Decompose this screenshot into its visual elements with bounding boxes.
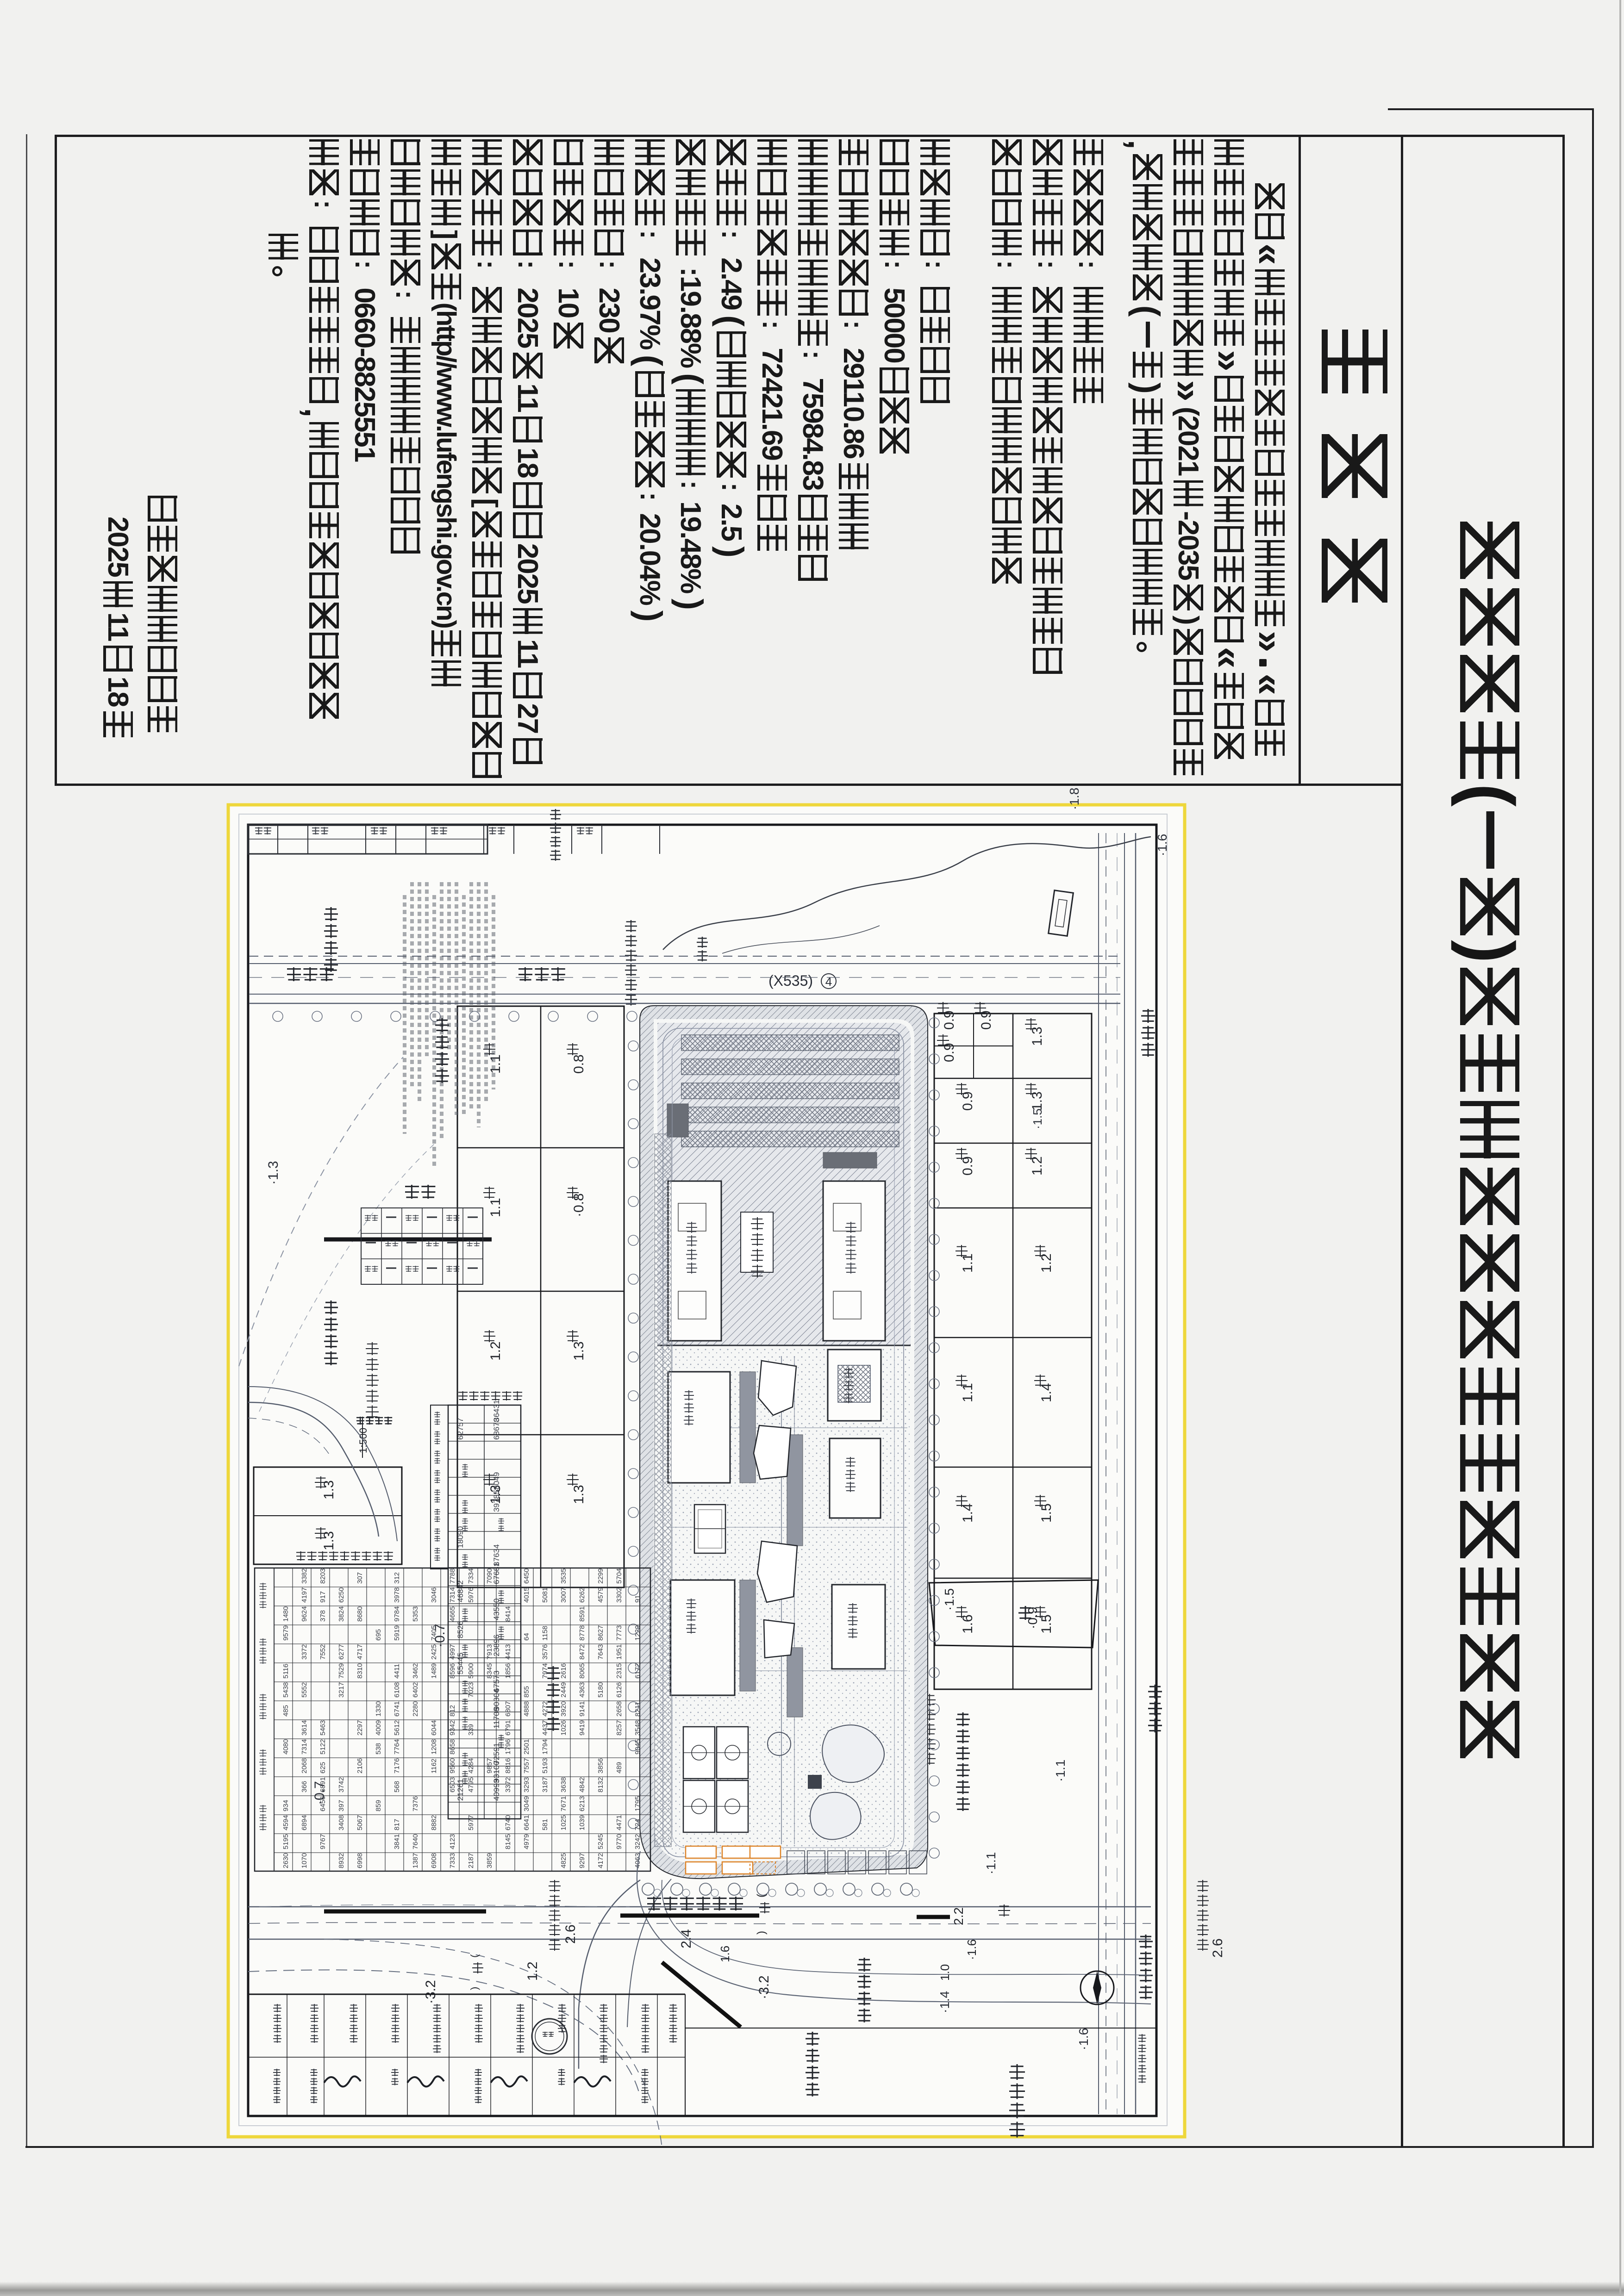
svg-text:·1.6: ·1.6 <box>965 1939 979 1960</box>
svg-text:6641: 6641 <box>523 1815 531 1830</box>
svg-text:9045: 9045 <box>634 1739 642 1755</box>
svg-text:917: 917 <box>319 1591 327 1603</box>
svg-text:7405: 7405 <box>430 1625 438 1641</box>
svg-text:8065: 8065 <box>578 1663 586 1679</box>
svg-text:3293: 3293 <box>523 1777 531 1792</box>
svg-text:4579: 4579 <box>597 1587 605 1603</box>
svg-text:0.9: 0.9 <box>942 1010 957 1030</box>
svg-text:2280: 2280 <box>412 1701 419 1717</box>
svg-text:3462: 3462 <box>412 1663 419 1679</box>
svg-text:2449: 2449 <box>560 1682 568 1698</box>
svg-text:0.9: 0.9 <box>960 1091 975 1111</box>
svg-text:1208: 1208 <box>430 1739 438 1755</box>
svg-text:5463: 5463 <box>319 1720 327 1736</box>
svg-text:489: 489 <box>615 1762 623 1773</box>
svg-text:3408: 3408 <box>337 1815 345 1830</box>
svg-text:7314: 7314 <box>300 1739 308 1755</box>
svg-text:1.3: 1.3 <box>1030 1091 1045 1111</box>
svg-text:5180: 5180 <box>597 1682 605 1698</box>
svg-text:7913: 7913 <box>486 1644 493 1660</box>
svg-text:3302: 3302 <box>615 1587 623 1603</box>
svg-text:7671: 7671 <box>560 1796 568 1811</box>
svg-text:4665: 4665 <box>449 1606 456 1622</box>
svg-text:8132: 8132 <box>597 1777 605 1792</box>
svg-text:4272: 4272 <box>541 1701 549 1717</box>
svg-text:46842: 46842 <box>456 1580 465 1602</box>
svg-text:8310: 8310 <box>356 1663 364 1679</box>
svg-text:·0.8: ·0.8 <box>571 1193 587 1217</box>
svg-text:4015: 4015 <box>523 1587 531 1603</box>
svg-text:2068: 2068 <box>300 1758 308 1773</box>
svg-text:): ) <box>468 1987 480 1990</box>
svg-text:1856: 1856 <box>504 1663 512 1679</box>
svg-text:4842: 4842 <box>578 1777 586 1792</box>
svg-text:64: 64 <box>523 1633 531 1641</box>
svg-text:2.6: 2.6 <box>563 1924 578 1944</box>
svg-text:5116: 5116 <box>282 1664 290 1679</box>
svg-text:6213: 6213 <box>578 1796 586 1811</box>
svg-text:1.1: 1.1 <box>960 1383 975 1402</box>
svg-text:3217: 3217 <box>337 1682 345 1698</box>
svg-text:3576: 3576 <box>541 1644 549 1660</box>
svg-text:568: 568 <box>393 1781 401 1792</box>
svg-text:7773: 7773 <box>615 1625 623 1641</box>
svg-text:485: 485 <box>282 1705 290 1717</box>
svg-text:6277: 6277 <box>337 1644 345 1660</box>
svg-text:5977: 5977 <box>467 1815 475 1830</box>
svg-text:1.1: 1.1 <box>960 1253 975 1273</box>
svg-text:3742: 3742 <box>337 1777 345 1792</box>
svg-text:9770: 9770 <box>615 1834 623 1849</box>
svg-text:8778: 8778 <box>578 1625 586 1641</box>
svg-text:4437: 4437 <box>541 1720 549 1736</box>
svg-text:1.3: 1.3 <box>321 1480 337 1500</box>
svg-text:4363: 4363 <box>578 1682 586 1698</box>
svg-text:7333: 7333 <box>449 1853 456 1868</box>
svg-text:5122: 5122 <box>319 1739 327 1755</box>
svg-text:6172: 6172 <box>634 1663 642 1679</box>
svg-text:6402: 6402 <box>412 1682 419 1698</box>
svg-text:817: 817 <box>393 1819 401 1830</box>
svg-text:8591: 8591 <box>578 1606 586 1622</box>
svg-text:3614: 3614 <box>300 1720 308 1736</box>
svg-text:6126: 6126 <box>615 1682 623 1698</box>
svg-text:4080: 4080 <box>282 1739 290 1755</box>
svg-text:4284: 4284 <box>467 1758 475 1773</box>
svg-text:9419: 9419 <box>578 1720 586 1736</box>
svg-text:9560: 9560 <box>449 1758 456 1773</box>
svg-text:581: 581 <box>541 1819 549 1830</box>
svg-text:1039: 1039 <box>578 1815 586 1830</box>
svg-text:5245: 5245 <box>597 1834 605 1849</box>
svg-text:2501: 2501 <box>523 1739 531 1755</box>
svg-text:5552: 5552 <box>300 1682 308 1698</box>
svg-text:·3.2: ·3.2 <box>756 1975 772 1999</box>
svg-text:9857: 9857 <box>486 1758 493 1773</box>
svg-text:4471: 4471 <box>615 1815 623 1830</box>
svg-text:1162: 1162 <box>430 1759 438 1773</box>
svg-text:5438: 5438 <box>282 1682 290 1698</box>
svg-text:312: 312 <box>393 1572 401 1584</box>
svg-text:9141: 9141 <box>578 1701 586 1717</box>
svg-text:3920: 3920 <box>560 1701 568 1717</box>
svg-text:1.3: 1.3 <box>321 1531 337 1550</box>
svg-text:1.3: 1.3 <box>571 1485 587 1504</box>
svg-text:1.4: 1.4 <box>960 1503 975 1523</box>
svg-text:3372: 3372 <box>300 1644 308 1660</box>
svg-text:4997: 4997 <box>449 1644 456 1660</box>
svg-text:7176: 7176 <box>393 1758 401 1773</box>
svg-text:·1.1: ·1.1 <box>984 1852 998 1874</box>
svg-text:8932: 8932 <box>337 1853 345 1868</box>
svg-text:366: 366 <box>300 1781 308 1792</box>
svg-text:8658: 8658 <box>449 1739 456 1755</box>
svg-text:4197: 4197 <box>300 1587 308 1603</box>
svg-text:·1.6: ·1.6 <box>1155 834 1169 856</box>
svg-text:0.9: 0.9 <box>979 1010 994 1030</box>
svg-text:9767: 9767 <box>319 1834 327 1849</box>
svg-text:1795: 1795 <box>634 1796 642 1811</box>
svg-text:3548: 3548 <box>634 1720 642 1736</box>
svg-text:2.4: 2.4 <box>679 1929 694 1948</box>
svg-text:3824: 3824 <box>337 1606 345 1622</box>
svg-text:1.3: 1.3 <box>571 1341 587 1361</box>
svg-text:6250: 6250 <box>337 1587 345 1603</box>
svg-text:·1.8: ·1.8 <box>1067 788 1081 810</box>
svg-text:0.8: 0.8 <box>571 1054 587 1074</box>
svg-text:39785: 39785 <box>492 1490 501 1512</box>
svg-text:8414: 8414 <box>504 1606 512 1622</box>
svg-text:·1.5: ·1.5 <box>942 1588 956 1611</box>
svg-text:68678: 68678 <box>492 1418 501 1440</box>
svg-text:2106: 2106 <box>356 1758 364 1773</box>
svg-text:5081: 5081 <box>541 1587 549 1603</box>
svg-text:5067: 5067 <box>356 1815 364 1830</box>
svg-text:1489: 1489 <box>430 1663 438 1679</box>
svg-text:7643: 7643 <box>597 1644 605 1660</box>
svg-text:2616: 2616 <box>560 1663 568 1679</box>
svg-text:8257: 8257 <box>615 1720 623 1736</box>
svg-text:1.1: 1.1 <box>488 1054 503 1074</box>
svg-text:307: 307 <box>356 1572 364 1584</box>
svg-text:2297: 2297 <box>356 1720 364 1736</box>
svg-text:6741: 6741 <box>393 1701 401 1717</box>
svg-text:0.9: 0.9 <box>960 1156 975 1176</box>
svg-text:4795: 4795 <box>467 1777 475 1792</box>
svg-text:1.1: 1.1 <box>488 1198 503 1217</box>
svg-text:9784: 9784 <box>393 1606 401 1622</box>
svg-text:855: 855 <box>523 1686 531 1698</box>
svg-text:7334: 7334 <box>467 1568 475 1584</box>
svg-text:9342: 9342 <box>449 1720 456 1736</box>
svg-text:1.0: 1.0 <box>938 1964 952 1981</box>
svg-text:9624: 9624 <box>300 1606 308 1622</box>
svg-text:2658: 2658 <box>615 1701 623 1717</box>
svg-text:55445: 55445 <box>456 1653 465 1674</box>
svg-text:62757: 62757 <box>456 1418 465 1440</box>
svg-text:1.4: 1.4 <box>1039 1383 1054 1402</box>
svg-text:3841: 3841 <box>393 1834 401 1849</box>
svg-text:7640: 7640 <box>412 1834 419 1849</box>
svg-text:1330: 1330 <box>375 1701 382 1717</box>
svg-text:6908: 6908 <box>430 1853 438 1868</box>
svg-text:1.2: 1.2 <box>1039 1253 1054 1273</box>
svg-text:5193: 5193 <box>541 1758 549 1773</box>
svg-text:5919: 5919 <box>393 1625 401 1641</box>
svg-text:6456: 6456 <box>319 1796 327 1811</box>
svg-text:3372: 3372 <box>504 1777 512 1792</box>
svg-text:3859: 3859 <box>486 1853 493 1868</box>
svg-text:8203: 8203 <box>319 1568 327 1584</box>
svg-text:5704: 5704 <box>615 1568 623 1584</box>
svg-text:1.6: 1.6 <box>960 1614 975 1634</box>
svg-text:1.2: 1.2 <box>488 1341 503 1361</box>
svg-text:·1.5: ·1.5 <box>1031 1108 1044 1129</box>
svg-text:21261: 21261 <box>456 1779 465 1801</box>
svg-text:18090: 18090 <box>456 1526 465 1548</box>
svg-text:4825: 4825 <box>560 1853 568 1868</box>
svg-text:6740: 6740 <box>504 1815 512 1830</box>
svg-text:·1.6: ·1.6 <box>1076 2028 1091 2050</box>
svg-text:1480: 1480 <box>282 1606 290 1622</box>
svg-text:8345: 8345 <box>486 1663 493 1679</box>
svg-text:7023: 7023 <box>467 1682 475 1698</box>
svg-text:·3.2: ·3.2 <box>423 1980 438 2004</box>
svg-text:7557: 7557 <box>523 1758 531 1773</box>
svg-text:4009: 4009 <box>375 1720 382 1736</box>
svg-text:7974: 7974 <box>541 1663 549 1679</box>
svg-text:4594: 4594 <box>282 1815 290 1830</box>
svg-text:6262: 6262 <box>578 1587 586 1603</box>
svg-text:5195: 5195 <box>282 1834 290 1849</box>
svg-text:4172: 4172 <box>597 1853 605 1868</box>
svg-text:91: 91 <box>634 1595 642 1603</box>
svg-text:1025: 1025 <box>560 1815 568 1830</box>
svg-text:1.5: 1.5 <box>1039 1503 1054 1523</box>
svg-text:4979: 4979 <box>523 1834 531 1849</box>
svg-text:0.9: 0.9 <box>942 1043 957 1062</box>
svg-text:7788: 7788 <box>449 1568 456 1584</box>
svg-text:): ) <box>755 1931 768 1935</box>
svg-text:8882: 8882 <box>430 1815 438 1830</box>
svg-text:4411: 4411 <box>393 1664 401 1679</box>
svg-text:1.2: 1.2 <box>525 1961 540 1981</box>
svg-text:2299: 2299 <box>597 1568 605 1584</box>
svg-text:1387: 1387 <box>412 1853 419 1868</box>
svg-text:4413: 4413 <box>504 1644 512 1660</box>
svg-text:9297: 9297 <box>578 1853 586 1868</box>
svg-text:3046: 3046 <box>430 1587 438 1603</box>
svg-text:6450: 6450 <box>523 1568 531 1584</box>
svg-text:(X535): (X535) <box>768 972 813 989</box>
svg-text:7376: 7376 <box>412 1796 419 1811</box>
svg-text:4888: 4888 <box>523 1701 531 1717</box>
svg-text:538: 538 <box>375 1743 382 1755</box>
svg-text:695: 695 <box>375 1629 382 1641</box>
svg-text:3638: 3638 <box>560 1777 568 1792</box>
svg-text:6807: 6807 <box>504 1701 512 1717</box>
svg-text:6108: 6108 <box>393 1682 401 1698</box>
svg-text:1026: 1026 <box>560 1720 568 1736</box>
svg-text:3007: 3007 <box>560 1587 568 1603</box>
svg-text:7552: 7552 <box>319 1644 327 1660</box>
svg-text:6998: 6998 <box>356 1853 364 1868</box>
svg-text:8145: 8145 <box>504 1834 512 1849</box>
svg-text:3856: 3856 <box>597 1758 605 1773</box>
svg-text:9579: 9579 <box>282 1625 290 1641</box>
svg-text:(: ( <box>468 1954 480 1958</box>
svg-text:7529: 7529 <box>337 1663 345 1679</box>
svg-text:5976: 5976 <box>467 1587 475 1603</box>
svg-text:3382: 3382 <box>300 1568 308 1584</box>
svg-text:1229: 1229 <box>634 1625 642 1641</box>
svg-text:1158: 1158 <box>541 1626 549 1641</box>
svg-text:339: 339 <box>467 1724 475 1736</box>
svg-text:1070: 1070 <box>300 1853 308 1868</box>
svg-text:6894: 6894 <box>300 1815 308 1830</box>
svg-text:859: 859 <box>375 1800 382 1811</box>
svg-text:1.3: 1.3 <box>1030 1027 1045 1046</box>
svg-text:1796: 1796 <box>504 1739 512 1755</box>
svg-text:2425: 2425 <box>430 1644 438 1660</box>
svg-text:·0.9: ·0.9 <box>1025 1607 1040 1629</box>
svg-text:5353: 5353 <box>412 1606 419 1622</box>
svg-text:4717: 4717 <box>356 1644 364 1660</box>
svg-text:·1.1: ·1.1 <box>1053 1760 1068 1782</box>
svg-text:6044: 6044 <box>430 1720 438 1736</box>
svg-text:1.5: 1.5 <box>1039 1614 1054 1634</box>
svg-text:8526: 8526 <box>456 1621 465 1638</box>
svg-text:934: 934 <box>282 1800 290 1811</box>
svg-text:·1.3: ·1.3 <box>266 1161 281 1185</box>
svg-text:2.6: 2.6 <box>1210 1938 1225 1958</box>
svg-text:6791: 6791 <box>504 1720 512 1736</box>
svg-text:4123: 4123 <box>449 1834 456 1849</box>
svg-text:5612: 5612 <box>393 1720 401 1736</box>
svg-text:1.2: 1.2 <box>1030 1156 1045 1176</box>
svg-text:1794: 1794 <box>541 1739 549 1755</box>
svg-text:7090: 7090 <box>486 1568 493 1584</box>
svg-text:2.2: 2.2 <box>951 1907 966 1925</box>
svg-text:2630: 2630 <box>282 1853 290 1868</box>
svg-text:8627: 8627 <box>597 1625 605 1641</box>
svg-text:6891: 6891 <box>319 1777 327 1792</box>
svg-text:8596: 8596 <box>449 1663 456 1679</box>
svg-text:2315: 2315 <box>615 1663 623 1679</box>
svg-text:7764: 7764 <box>393 1739 401 1755</box>
svg-text:3242: 3242 <box>634 1834 642 1849</box>
svg-text:3978: 3978 <box>393 1587 401 1603</box>
svg-text:6503: 6503 <box>449 1777 456 1792</box>
svg-text:3535: 3535 <box>560 1568 568 1584</box>
svg-text:5900: 5900 <box>467 1663 475 1679</box>
svg-text:8211: 8211 <box>634 1702 642 1717</box>
svg-text:8680: 8680 <box>356 1606 364 1622</box>
svg-text:1951: 1951 <box>615 1644 623 1660</box>
svg-text:397: 397 <box>337 1800 345 1811</box>
svg-text:2187: 2187 <box>467 1853 475 1868</box>
svg-text:1.6: 1.6 <box>718 1946 732 1962</box>
svg-text:625: 625 <box>319 1762 327 1773</box>
svg-text:378: 378 <box>319 1610 327 1622</box>
svg-text:7314: 7314 <box>449 1587 456 1603</box>
svg-text:4: 4 <box>825 975 832 989</box>
svg-text:812: 812 <box>449 1705 456 1717</box>
svg-text:3049: 3049 <box>523 1796 531 1811</box>
svg-text:3187: 3187 <box>541 1777 549 1792</box>
svg-text:8816: 8816 <box>504 1758 512 1773</box>
svg-text:8472: 8472 <box>578 1644 586 1660</box>
svg-text:724: 724 <box>634 1819 642 1830</box>
